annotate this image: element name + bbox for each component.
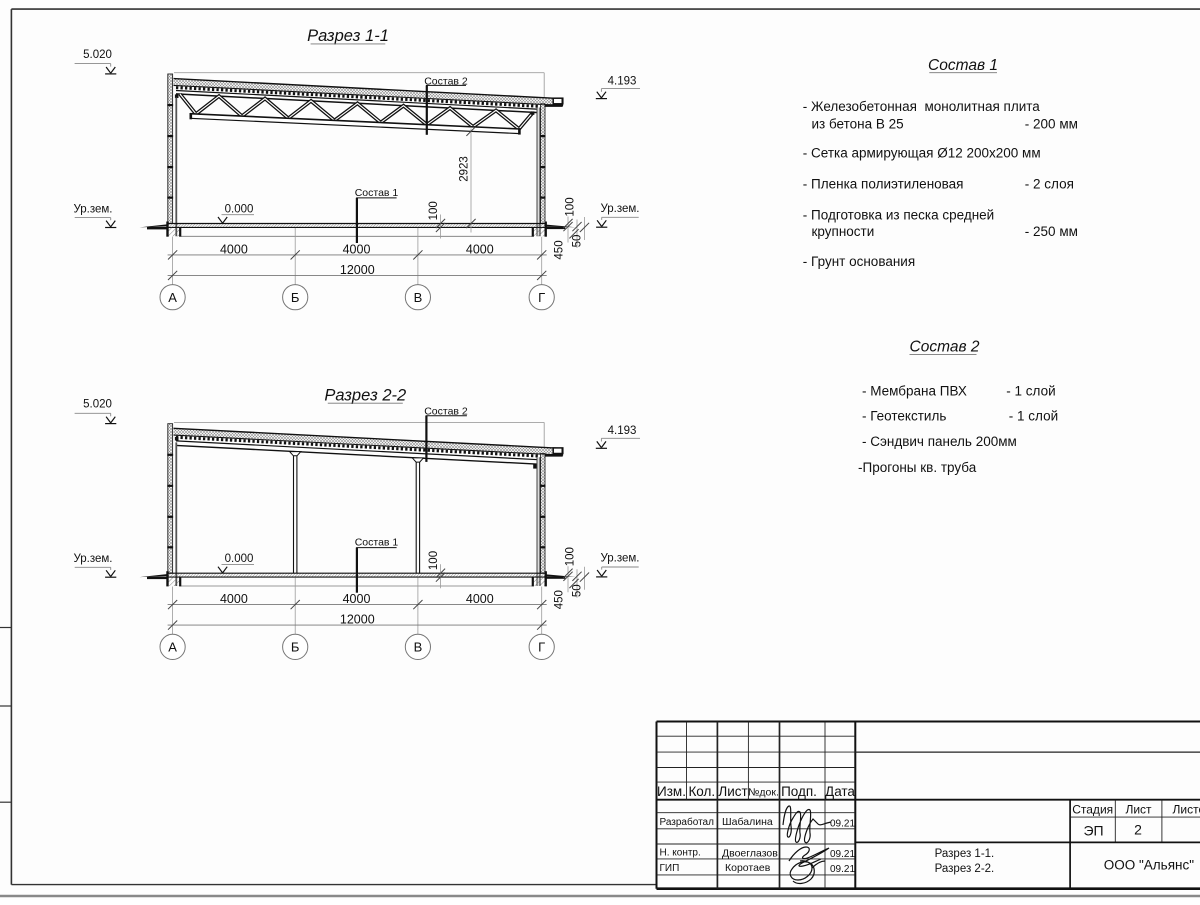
- svg-text:- 1 слой: - 1 слой: [1009, 409, 1058, 424]
- svg-text:Разрез 2-2.: Разрез 2-2.: [935, 863, 995, 875]
- svg-text:100: 100: [428, 201, 440, 220]
- svg-text:09.21: 09.21: [830, 864, 855, 875]
- svg-text:4.193: 4.193: [608, 75, 637, 87]
- svg-text:5.020: 5.020: [83, 49, 112, 61]
- svg-text:2: 2: [1134, 822, 1142, 838]
- svg-text:Б: Б: [291, 640, 300, 655]
- svg-text:4000: 4000: [466, 243, 494, 257]
- svg-text:- 200 мм: - 200 мм: [1025, 116, 1078, 131]
- svg-text:Г: Г: [538, 640, 545, 655]
- svg-text:- Железобетонная монолитная п: - Железобетонная монолитная плита: [803, 99, 1040, 114]
- svg-text:4000: 4000: [220, 243, 248, 257]
- svg-text:2923: 2923: [459, 156, 471, 182]
- svg-text:В: В: [414, 640, 423, 655]
- svg-text:09.21: 09.21: [830, 849, 855, 860]
- svg-text:5.020: 5.020: [83, 399, 112, 411]
- svg-text:Состав 1: Состав 1: [355, 537, 399, 549]
- svg-text:Листов: Листов: [1173, 803, 1200, 817]
- svg-text:- Пленка полиэтиленовая: - Пленка полиэтиленовая: [803, 177, 964, 192]
- svg-text:-Прогоны кв. труба: -Прогоны кв. труба: [858, 460, 977, 475]
- svg-text:Лист: Лист: [1125, 803, 1152, 817]
- svg-text:- 250 мм: - 250 мм: [1025, 224, 1078, 239]
- svg-text:Н. контр.: Н. контр.: [660, 848, 701, 859]
- svg-text:- Геотекстиль: - Геотекстиль: [862, 409, 946, 424]
- svg-text:Ур.зем.: Ур.зем.: [73, 204, 112, 216]
- svg-text:крупности: крупности: [812, 224, 875, 239]
- svg-text:4000: 4000: [220, 592, 248, 606]
- svg-text:А: А: [168, 290, 177, 305]
- svg-text:Разработал: Разработал: [660, 816, 715, 828]
- svg-text:0.000: 0.000: [225, 203, 254, 215]
- svg-text:Ур.зем.: Ур.зем.: [600, 553, 639, 565]
- svg-text:12000: 12000: [340, 263, 375, 277]
- svg-text:Кол.: Кол.: [688, 784, 715, 799]
- svg-text:12000: 12000: [340, 613, 375, 627]
- svg-text:Ур.зем.: Ур.зем.: [73, 553, 112, 565]
- svg-text:Разрез 2-2: Разрез 2-2: [324, 387, 406, 405]
- svg-text:- Сетка армирующая Ø12 200х200: - Сетка армирующая Ø12 200х200 мм: [803, 146, 1041, 161]
- svg-text:50: 50: [572, 235, 584, 248]
- svg-text:0.000: 0.000: [225, 553, 254, 565]
- svg-text:Двоеглазов: Двоеглазов: [722, 847, 778, 859]
- svg-text:Лист: Лист: [718, 784, 747, 799]
- svg-text:- 1 слой: - 1 слой: [1006, 384, 1055, 399]
- svg-text:50: 50: [572, 584, 584, 597]
- svg-text:450: 450: [554, 590, 566, 609]
- svg-text:450: 450: [554, 240, 566, 259]
- svg-text:Ур.зем.: Ур.зем.: [600, 203, 639, 215]
- svg-text:100: 100: [565, 197, 577, 216]
- svg-text:Г: Г: [538, 290, 545, 305]
- svg-text:Изм.: Изм.: [657, 784, 686, 799]
- svg-text:Дата: Дата: [825, 784, 855, 799]
- svg-text:из бетона В 25: из бетона В 25: [812, 116, 904, 131]
- svg-text:Состав 1: Состав 1: [928, 57, 998, 74]
- svg-text:Разрез 1-1: Разрез 1-1: [307, 27, 389, 45]
- svg-text:- Грунт основания: - Грунт основания: [803, 254, 915, 269]
- svg-text:- 2 слоя: - 2 слоя: [1025, 177, 1074, 192]
- svg-text:4000: 4000: [343, 243, 371, 257]
- svg-text:4000: 4000: [466, 592, 494, 606]
- svg-text:№док.: №док.: [748, 787, 779, 799]
- svg-text:Стадия: Стадия: [1072, 803, 1113, 817]
- svg-text:Подп.: Подп.: [781, 784, 817, 799]
- svg-text:100: 100: [565, 547, 577, 566]
- svg-text:ЭП: ЭП: [1083, 822, 1103, 838]
- svg-text:4000: 4000: [343, 592, 371, 606]
- svg-text:Разрез 1-1.: Разрез 1-1.: [935, 848, 995, 860]
- svg-text:Шабалина: Шабалина: [722, 816, 773, 828]
- svg-text:- Мембрана ПВХ: - Мембрана ПВХ: [862, 384, 967, 399]
- svg-text:Состав 2: Состав 2: [910, 338, 980, 355]
- svg-text:Состав 1: Состав 1: [355, 187, 399, 199]
- svg-text:ГИП: ГИП: [660, 863, 680, 874]
- svg-text:Коротаев: Коротаев: [725, 862, 771, 874]
- svg-text:А: А: [168, 640, 177, 655]
- svg-text:- Сэндвич панель 200мм: - Сэндвич панель 200мм: [862, 434, 1017, 449]
- svg-text:В: В: [414, 290, 423, 305]
- svg-text:100: 100: [428, 551, 440, 570]
- svg-text:Б: Б: [291, 290, 300, 305]
- svg-text:- Подготовка из песка средней: - Подготовка из песка средней: [803, 207, 994, 222]
- svg-text:4.193: 4.193: [608, 425, 637, 437]
- svg-text:ООО "Альянс": ООО "Альянс": [1104, 857, 1194, 872]
- svg-text:09.21: 09.21: [830, 818, 855, 829]
